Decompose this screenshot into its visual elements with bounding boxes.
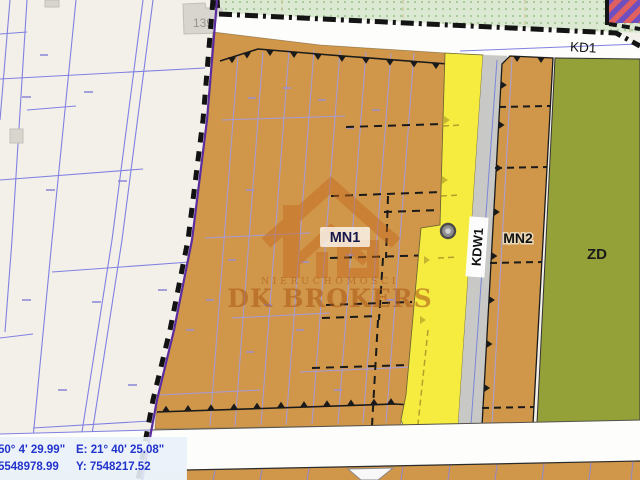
zone-mn2-label: MN2 [503, 230, 533, 246]
striped-zone-corner [605, 0, 640, 25]
road-kd1-label: KD1 [570, 39, 597, 55]
map-viewer-window: 139 [0, 0, 640, 480]
zone-zd[interactable] [537, 58, 640, 423]
latitude-value: 50° 4' 29.99" [0, 444, 65, 456]
map-marker[interactable] [441, 224, 455, 238]
easting-value: Y: 7548217.52 [76, 461, 151, 473]
zone-mn1-label: MN1 [330, 230, 361, 246]
longitude-value: E: 21° 40' 25.08" [76, 444, 164, 456]
watermark-title: DK BROKERS [227, 284, 432, 313]
road-kdw1-label: KDW1 [468, 227, 486, 266]
zone-zd-label: ZD [587, 246, 607, 263]
northing-value: 5548978.99 [0, 461, 59, 473]
map-canvas[interactable]: 139 [0, 0, 640, 480]
coordinate-readout: 50° 4' 29.99" E: 21° 40' 25.08" 5548978.… [0, 437, 187, 480]
